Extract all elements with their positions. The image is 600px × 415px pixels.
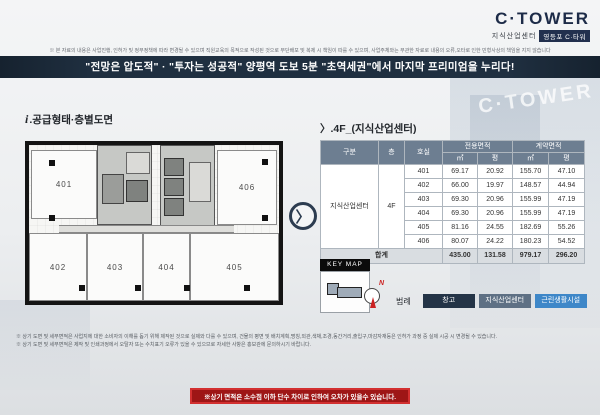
cell-ex-py: 24.55 bbox=[478, 221, 513, 235]
key-map-diagram bbox=[320, 271, 370, 313]
core-shaft bbox=[126, 180, 148, 202]
cell-ct-m2: 180.23 bbox=[513, 235, 549, 249]
cell-ct-py: 47.19 bbox=[549, 193, 585, 207]
cell-ex-m2: 69.30 bbox=[443, 207, 478, 221]
col-header-m2: ㎡ bbox=[443, 153, 478, 165]
room-label: 402 bbox=[50, 263, 66, 272]
cell-room: 406 bbox=[405, 235, 443, 249]
col-header-pyeong: 평 bbox=[478, 153, 513, 165]
room-label: 401 bbox=[56, 180, 72, 189]
core-stairs bbox=[189, 162, 211, 202]
cell-ct-py: 47.19 bbox=[549, 207, 585, 221]
core-elevator bbox=[164, 198, 184, 216]
compass-needle bbox=[370, 297, 376, 308]
legend-item-knowledge-industry-center: 지식산업센터 bbox=[479, 294, 531, 308]
cell-ct-m2: 148.57 bbox=[513, 179, 549, 193]
logo-title: C·TOWER bbox=[492, 10, 590, 28]
background-watermark: C·TOWER bbox=[477, 80, 595, 119]
key-map: KEY MAP bbox=[320, 259, 370, 313]
floor-plan: 401 406 402 403 404 405 bbox=[25, 141, 283, 305]
floorplan-room-406: 406 bbox=[217, 150, 277, 225]
core-elevator bbox=[164, 158, 184, 176]
cell-floor: 4F bbox=[379, 165, 405, 249]
legend: 범례 창고 지식산업센터 근린생활시설 bbox=[396, 294, 587, 308]
cell-room: 402 bbox=[405, 179, 443, 193]
col-header-exclusive-area: 전용면적 bbox=[443, 141, 513, 153]
cell-ex-py: 20.96 bbox=[478, 207, 513, 221]
key-map-building-shape bbox=[337, 287, 362, 298]
cell-room: 403 bbox=[405, 193, 443, 207]
room-label: 403 bbox=[107, 263, 123, 272]
logo-subtitle: 지식산업센터 bbox=[492, 31, 537, 41]
cell-room: 404 bbox=[405, 207, 443, 221]
core-restroom bbox=[126, 152, 150, 174]
legend-title: 범례 bbox=[396, 296, 411, 307]
cell-category: 지식산업센터 bbox=[321, 165, 379, 249]
compass-circle bbox=[364, 288, 380, 304]
room-label: 405 bbox=[226, 263, 242, 272]
column-marker bbox=[184, 285, 190, 291]
cell-ex-m2: 69.30 bbox=[443, 193, 478, 207]
cell-room: 401 bbox=[405, 165, 443, 179]
floorplan-room-404: 404 bbox=[143, 233, 190, 301]
area-table: 구분 층 호실 전용면적 계약면적 ㎡ 평 ㎡ 평 지식산업센터 4F 401 … bbox=[320, 140, 585, 264]
col-header-m2: ㎡ bbox=[513, 153, 549, 165]
section-heading-floorplan-label: .공급형태·층별도면 bbox=[29, 114, 113, 126]
footnote-line: ※ 상기 도면 및 세부면적은 사업지에 대한 소비자의 이해를 돕기 위해 제… bbox=[16, 333, 497, 341]
cell-ct-m2: 155.99 bbox=[513, 207, 549, 221]
cell-ct-py: 55.26 bbox=[549, 221, 585, 235]
cell-ex-py: 20.96 bbox=[478, 193, 513, 207]
top-disclaimer-text: ※ 본 자료의 내용은 사업진행, 인허가 및 정부정책에 따라 변경될 수 있… bbox=[0, 47, 600, 54]
floorplan-corridor bbox=[59, 225, 234, 233]
cell-ct-m2: 155.99 bbox=[513, 193, 549, 207]
column-marker bbox=[135, 285, 141, 291]
floorplan-core-left bbox=[97, 145, 152, 225]
table-row: 지식산업센터 4F 401 69.17 20.92 155.70 47.10 bbox=[321, 165, 585, 179]
cell-ex-py: 20.92 bbox=[478, 165, 513, 179]
core-stairs bbox=[102, 174, 124, 204]
cell-ex-m2: 81.16 bbox=[443, 221, 478, 235]
section-heading-4f-label: .4F_(지식산업센터) bbox=[331, 123, 417, 135]
cell-total-ct-py: 296.20 bbox=[549, 249, 585, 264]
col-header-floor: 층 bbox=[379, 141, 405, 165]
cell-ex-m2: 80.07 bbox=[443, 235, 478, 249]
column-marker bbox=[262, 215, 268, 221]
cell-ct-py: 44.94 bbox=[549, 179, 585, 193]
room-label: 404 bbox=[158, 263, 174, 272]
cell-ct-py: 54.52 bbox=[549, 235, 585, 249]
key-map-label: KEY MAP bbox=[320, 259, 370, 271]
col-header-contract-area: 계약면적 bbox=[513, 141, 585, 153]
floorplan-room-405: 405 bbox=[190, 233, 279, 301]
floorplan-room-401: 401 bbox=[31, 150, 97, 219]
cell-ex-m2: 66.00 bbox=[443, 179, 478, 193]
bottom-notice-banner: ※상기 면적은 소수점 이하 단수 차이로 인하여 오차가 있을수 있습니다. bbox=[190, 388, 410, 404]
cell-ct-m2: 155.70 bbox=[513, 165, 549, 179]
brand-logo: C·TOWER 지식산업센터 영등포 C·타워 bbox=[492, 10, 590, 42]
legend-item-neighborhood-facility: 근린생활시설 bbox=[535, 294, 587, 308]
logo-badge: 영등포 C·타워 bbox=[539, 30, 590, 42]
legend-item-warehouse: 창고 bbox=[423, 294, 475, 308]
cell-ex-py: 19.97 bbox=[478, 179, 513, 193]
column-marker bbox=[244, 285, 250, 291]
cell-ct-py: 47.10 bbox=[549, 165, 585, 179]
compass-north-label: N bbox=[379, 280, 384, 287]
column-marker bbox=[79, 285, 85, 291]
footnotes: ※ 상기 도면 및 세부면적은 사업지에 대한 소비자의 이해를 돕기 위해 제… bbox=[16, 333, 497, 349]
cell-ex-py: 24.22 bbox=[478, 235, 513, 249]
cell-ex-m2: 69.17 bbox=[443, 165, 478, 179]
section-heading-4f: 〉.4F_(지식산업센터) bbox=[320, 121, 416, 136]
headline-banner: "전망은 압도적" · "투자는 성공적" 양평역 도보 5분 "초역세권"에서… bbox=[0, 56, 600, 78]
col-header-pyeong: 평 bbox=[549, 153, 585, 165]
footnote-line: ※ 상기 도면 및 세부면적은 제작 및 인쇄과정에서 오탈자 또는 수치표기 … bbox=[16, 341, 497, 349]
chevron-right-icon: 〉 bbox=[289, 202, 317, 230]
column-marker bbox=[49, 160, 55, 166]
compass-north-icon: N bbox=[364, 282, 384, 306]
column-marker bbox=[49, 215, 55, 221]
cell-ct-m2: 182.69 bbox=[513, 221, 549, 235]
col-header-room: 호실 bbox=[405, 141, 443, 165]
cell-total-ex-py: 131.58 bbox=[478, 249, 513, 264]
section-heading-floorplan: i.공급형태·층별도면 bbox=[25, 112, 113, 127]
col-header-gubun: 구분 bbox=[321, 141, 379, 165]
info-icon: i bbox=[25, 112, 28, 126]
cell-room: 405 bbox=[405, 221, 443, 235]
core-elevator bbox=[164, 178, 184, 196]
chevron-icon: 〉 bbox=[320, 123, 331, 135]
cell-total-ct-m2: 979.17 bbox=[513, 249, 549, 264]
column-marker bbox=[262, 159, 268, 165]
room-label: 406 bbox=[239, 183, 255, 192]
floorplan-core-right bbox=[160, 145, 215, 231]
cell-total-ex-m2: 435.00 bbox=[443, 249, 478, 264]
